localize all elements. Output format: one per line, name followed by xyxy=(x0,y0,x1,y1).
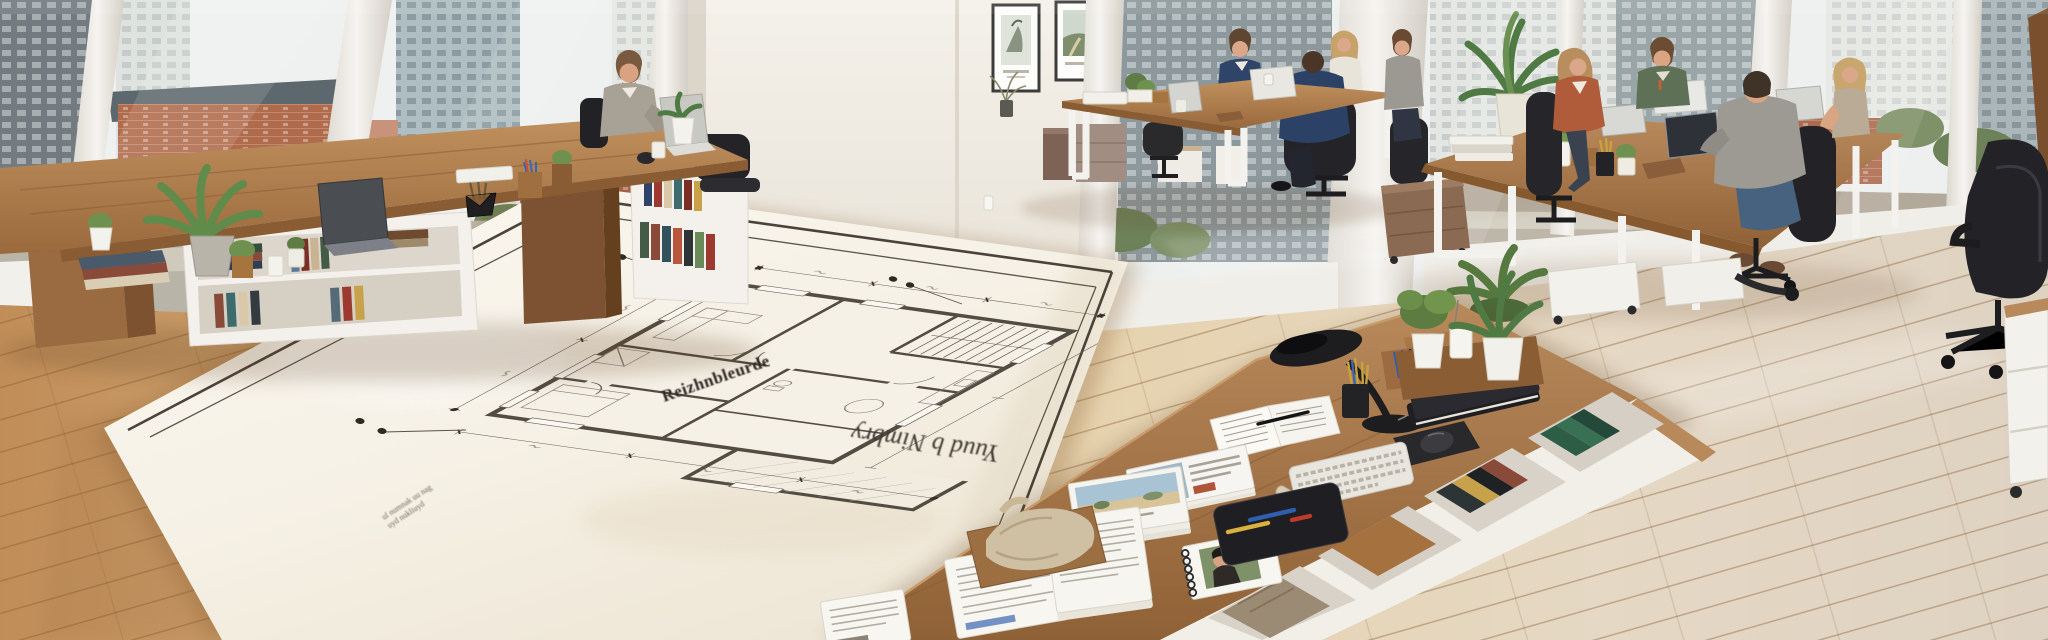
office-photo: Reizhnbleurde Yuud b Nimbry ul numnak uu… xyxy=(0,0,2048,640)
office-scene: Reizhnbleurde Yuud b Nimbry ul numnak uu… xyxy=(0,0,2048,640)
top-light xyxy=(0,0,2048,14)
